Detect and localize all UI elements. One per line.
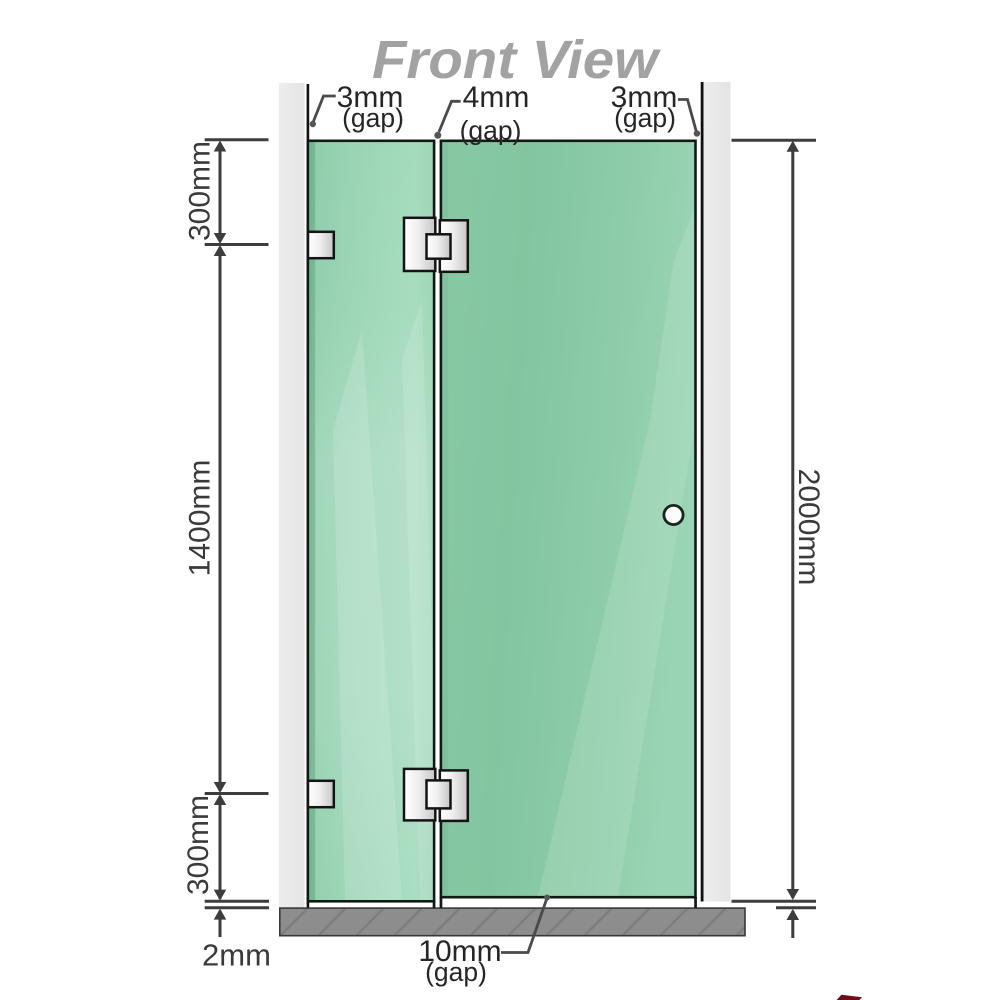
svg-text:(gap): (gap) [614,103,676,133]
svg-text:(gap): (gap) [425,957,487,987]
svg-text:300mm: 300mm [182,795,215,895]
svg-text:2mm: 2mm [202,938,271,973]
svg-text:(gap): (gap) [460,116,522,146]
svg-text:300mm: 300mm [184,141,217,241]
svg-text:(gap): (gap) [342,103,404,133]
svg-text:1400mm: 1400mm [184,460,217,577]
svg-text:2000mm: 2000mm [792,469,825,586]
svg-text:4mm: 4mm [463,81,530,114]
